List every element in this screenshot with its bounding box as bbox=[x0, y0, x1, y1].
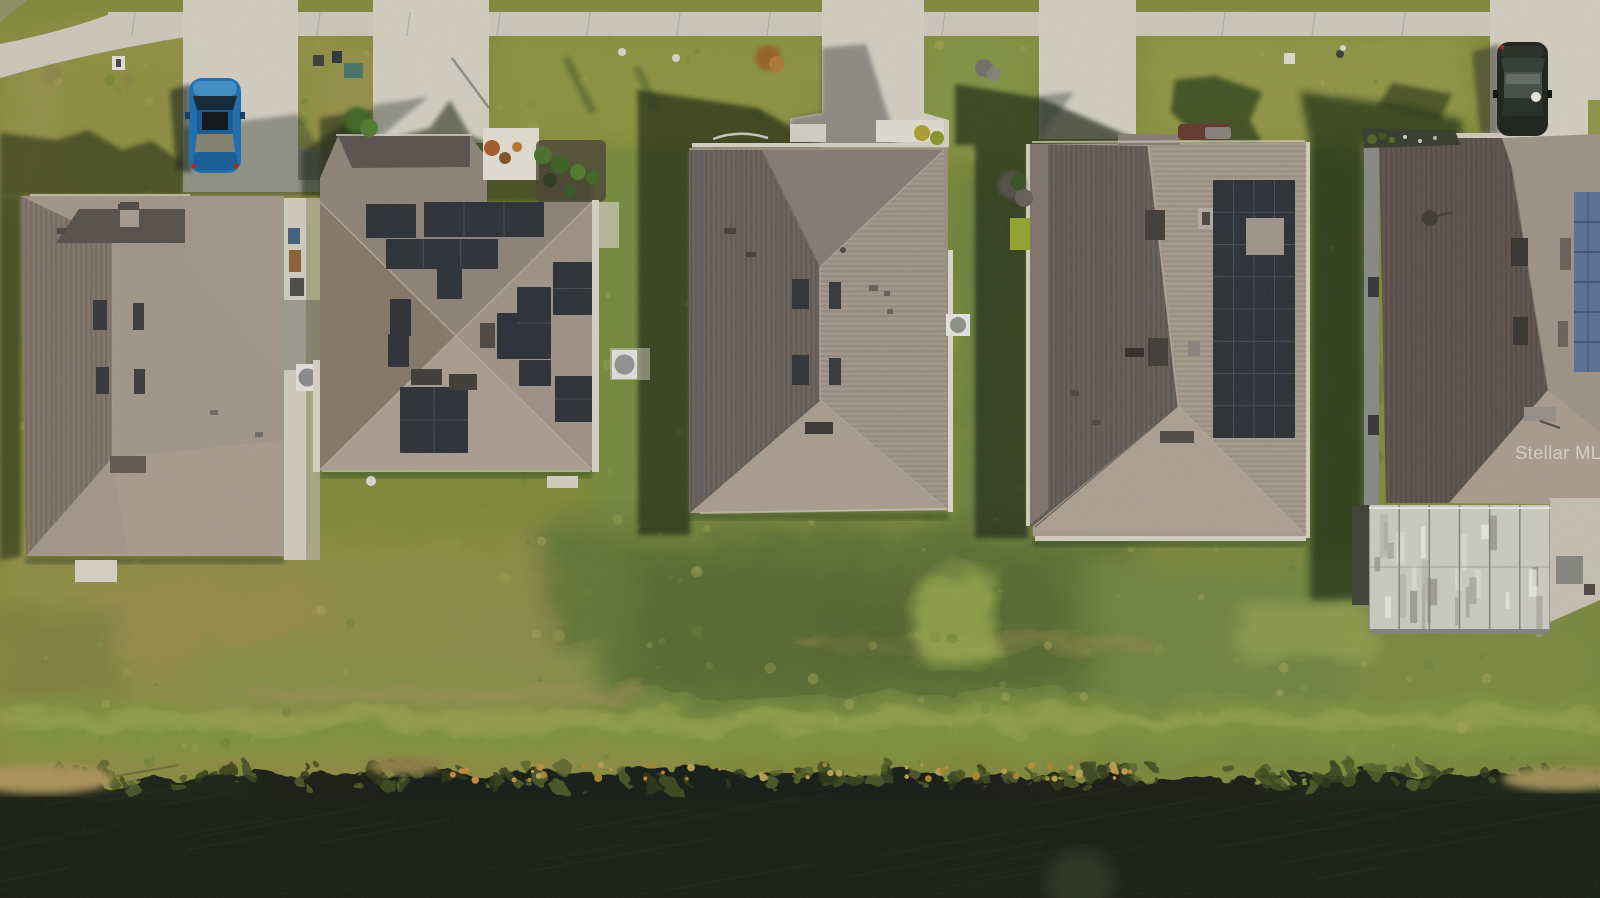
svg-text:Stellar MLS: Stellar MLS bbox=[1515, 442, 1600, 463]
